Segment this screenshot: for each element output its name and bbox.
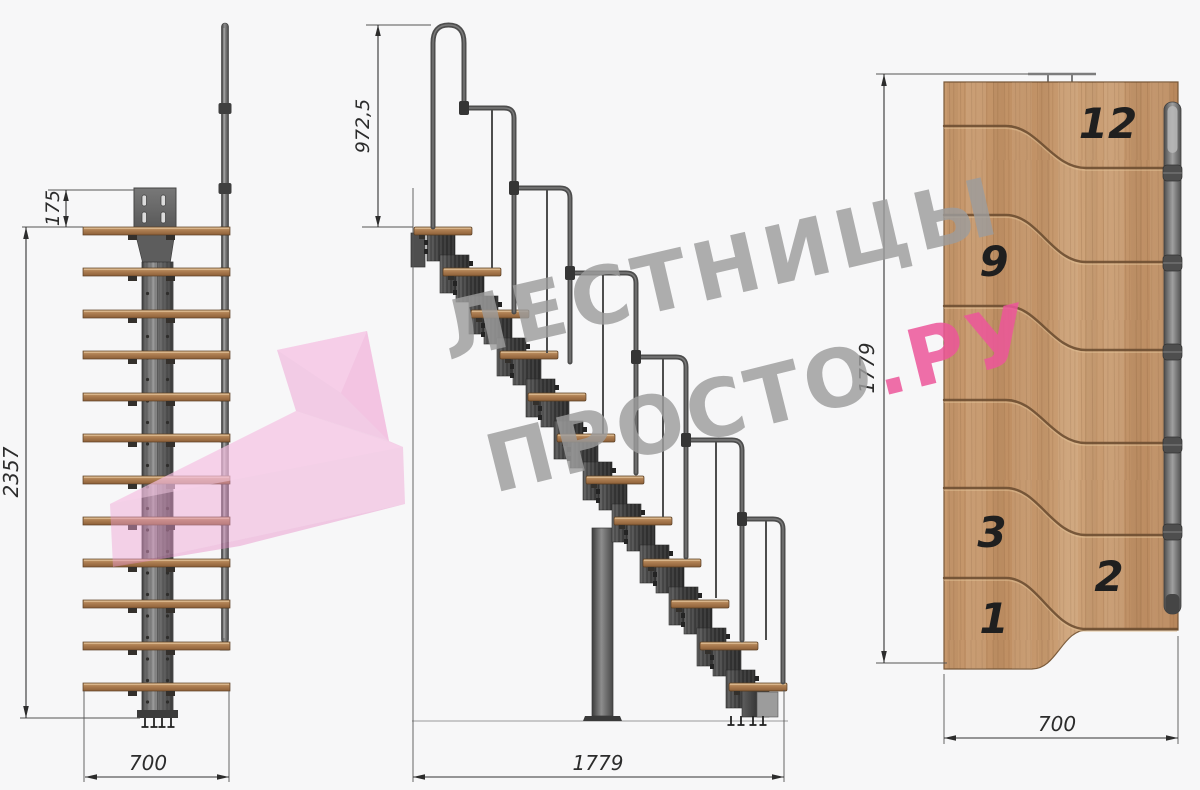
- dim-front-width: 700: [129, 751, 167, 775]
- column-bolt: [146, 679, 149, 682]
- module-bolt: [641, 510, 645, 515]
- module-bolt: [681, 613, 685, 618]
- plan-view: 12 9 3 2 1 1779 700: [855, 74, 1182, 744]
- module-bolt: [453, 290, 457, 295]
- column-bolt: [146, 528, 149, 531]
- column-bolt: [166, 636, 169, 639]
- module-bolt: [538, 415, 542, 420]
- step-bracket: [166, 484, 175, 489]
- step-bracket: [128, 484, 137, 489]
- dim-plan-width: 700: [1038, 712, 1076, 736]
- module-bolt: [555, 385, 559, 390]
- module-bolt: [453, 281, 457, 286]
- module-bolt: [710, 655, 714, 660]
- tread-bracket: [734, 691, 740, 695]
- tread-bracket: [505, 359, 511, 363]
- column-bolt: [146, 464, 149, 467]
- module-bolt: [755, 676, 759, 681]
- column-bolt: [146, 636, 149, 639]
- step-bracket: [128, 567, 137, 572]
- step-bracket: [166, 608, 175, 613]
- module-bolt: [583, 427, 587, 432]
- column-bolt: [166, 550, 169, 553]
- tread-bracket: [419, 235, 425, 239]
- step-bracket: [166, 525, 175, 530]
- module-bolt: [596, 498, 600, 503]
- plan-step-number-3: 3: [977, 508, 1006, 557]
- step-bracket: [166, 276, 175, 281]
- module-bolt: [469, 261, 473, 266]
- module-bolt: [726, 634, 730, 639]
- column-bolt: [166, 507, 169, 510]
- front-baluster-post: [222, 23, 229, 643]
- drawing-canvas: 175 2357 700: [0, 0, 1200, 790]
- step-bracket: [128, 359, 137, 364]
- column-base: [137, 710, 178, 718]
- tread-bracket: [676, 608, 682, 612]
- module-bolt: [710, 664, 714, 669]
- column-bolt: [146, 507, 149, 510]
- front-dimensions: [20, 190, 229, 782]
- step-bracket: [166, 442, 175, 447]
- module-bolt: [653, 572, 657, 577]
- tread-bracket: [533, 401, 539, 405]
- column-bolt: [146, 485, 149, 488]
- tread-bracket: [476, 318, 482, 322]
- front-view: 175 2357 700: [0, 23, 232, 782]
- dim-plan-run: 1779: [855, 343, 879, 394]
- tread-bracket: [562, 442, 568, 446]
- step-bracket: [128, 401, 137, 406]
- support-pole-flange: [583, 716, 622, 721]
- tread-bracket: [648, 567, 654, 571]
- column-bolt: [146, 657, 149, 660]
- plan-step-number-12: 12: [1079, 99, 1137, 148]
- tread-bracket: [619, 525, 625, 529]
- column-bolt: [146, 335, 149, 338]
- dim-total-height: 2357: [0, 446, 23, 497]
- step-bracket: [166, 567, 175, 572]
- module-bolt: [481, 332, 485, 337]
- column-bolt: [166, 378, 169, 381]
- column-bolt: [166, 421, 169, 424]
- module-bolt: [624, 539, 628, 544]
- plan-handrail-loop-top: [1168, 106, 1178, 153]
- tread-bracket: [591, 484, 597, 488]
- plan-step-number-9: 9: [979, 237, 1008, 286]
- column-bolt: [166, 679, 169, 682]
- module-bolt: [510, 364, 514, 369]
- dim-side-run: 1779: [573, 751, 624, 775]
- step-bracket: [128, 691, 137, 696]
- column-bolt: [166, 292, 169, 295]
- staircase-drawing: 175 2357 700: [0, 0, 1200, 790]
- column-bolt: [166, 593, 169, 596]
- step-bracket: [166, 318, 175, 323]
- step-bracket: [166, 401, 175, 406]
- step-bracket: [128, 442, 137, 447]
- baluster-coupler: [219, 103, 232, 114]
- support-pole: [592, 528, 613, 716]
- module-bolt: [498, 302, 502, 307]
- module-bolt: [424, 240, 428, 245]
- module-bolt: [424, 249, 428, 254]
- tread-bracket: [448, 276, 454, 280]
- module-bolt: [612, 468, 616, 473]
- step-bracket: [128, 525, 137, 530]
- plan-step-number-2: 2: [1094, 552, 1123, 601]
- handrail-top-loop: [433, 25, 464, 227]
- step-bracket: [128, 276, 137, 281]
- column-bolt: [146, 378, 149, 381]
- column-bolt: [166, 657, 169, 660]
- side-view: 972,5 1779: [352, 25, 788, 782]
- module-bolt: [526, 344, 530, 349]
- column-bolt: [146, 700, 149, 703]
- column-bolt: [146, 292, 149, 295]
- module-bolt: [567, 447, 571, 452]
- module-bolt: [567, 456, 571, 461]
- module-bolt: [698, 593, 702, 598]
- dim-rail-height: 972,5: [352, 99, 374, 153]
- module-bolt: [669, 551, 673, 556]
- module-bolt: [481, 323, 485, 328]
- step-bracket: [166, 691, 175, 696]
- tread-bracket: [705, 650, 711, 654]
- module-bolt: [538, 406, 542, 411]
- column-bolt: [146, 593, 149, 596]
- column-bolt: [146, 614, 149, 617]
- riser-base-panel: [757, 692, 778, 717]
- step-bracket: [166, 650, 175, 655]
- step-bracket: [128, 608, 137, 613]
- module-bolt: [681, 622, 685, 627]
- baluster-coupler: [219, 183, 232, 194]
- column-bolt: [166, 614, 169, 617]
- step-bracket: [128, 650, 137, 655]
- column-bolt: [146, 550, 149, 553]
- plan-handrail-end: [1166, 594, 1180, 614]
- step-bracket: [128, 235, 137, 240]
- column-bolt: [166, 700, 169, 703]
- module-bolt: [510, 373, 514, 378]
- column-bolt: [166, 335, 169, 338]
- step-bracket: [128, 318, 137, 323]
- column-bolt: [146, 442, 149, 445]
- module-bolt: [624, 530, 628, 535]
- column-bolt: [166, 464, 169, 467]
- front-anchor-bolts: [142, 718, 175, 727]
- plan-step-number-1: 1: [979, 594, 1008, 643]
- module-bolt: [653, 581, 657, 586]
- mount-plate: [134, 188, 176, 231]
- module-bolt: [596, 489, 600, 494]
- step-bracket: [166, 235, 175, 240]
- column-bolt: [146, 421, 149, 424]
- plan-handrail: [1163, 102, 1182, 614]
- dim-plate-offset: 175: [42, 190, 64, 226]
- step-bracket: [166, 359, 175, 364]
- column-bolt: [146, 571, 149, 574]
